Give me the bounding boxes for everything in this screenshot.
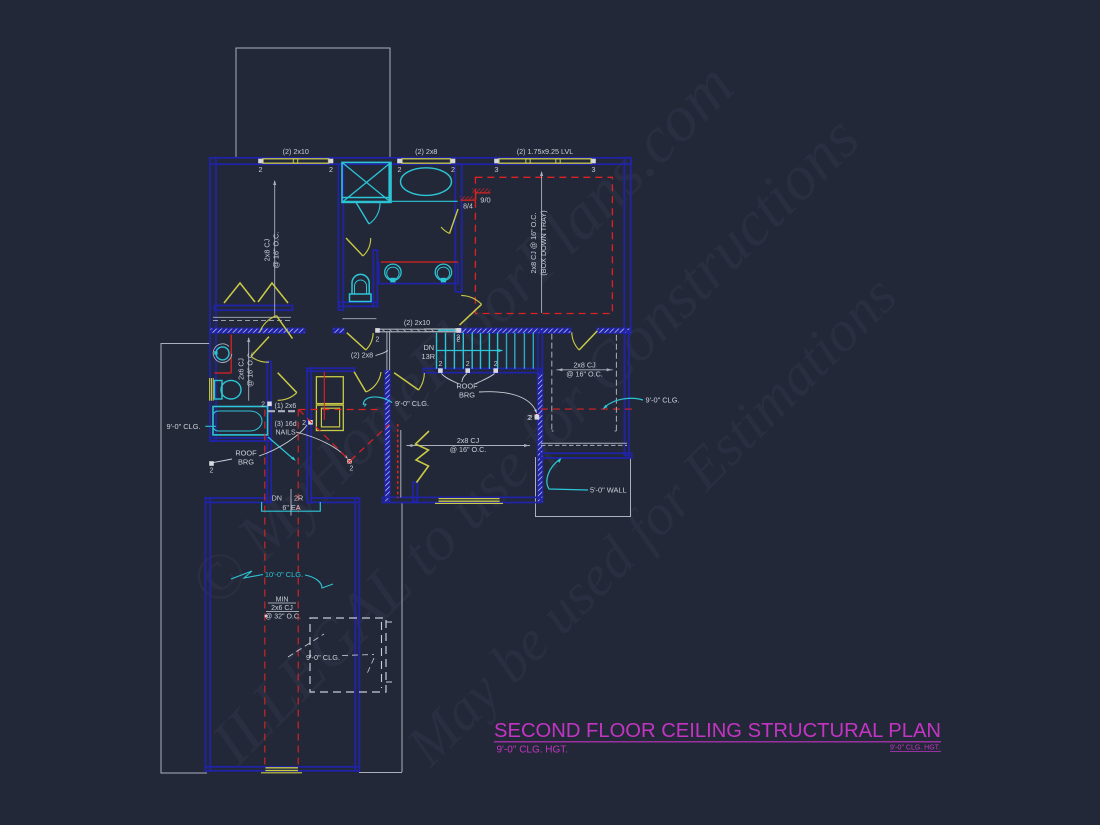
svg-text:9'-0" CLG. HGT.: 9'-0" CLG. HGT. bbox=[497, 745, 569, 756]
svg-text:8/4: 8/4 bbox=[463, 204, 473, 211]
svg-text:DN: DN bbox=[423, 343, 434, 352]
svg-text:SECOND FLOOR CEILING STRUCTURA: SECOND FLOOR CEILING STRUCTURAL PLAN bbox=[494, 720, 941, 742]
svg-text:2: 2 bbox=[398, 165, 402, 174]
svg-text:3: 3 bbox=[592, 165, 596, 174]
svg-text:@ 16" O.C.: @ 16" O.C. bbox=[566, 370, 603, 379]
svg-text:(3) 16d: (3) 16d bbox=[275, 421, 297, 428]
svg-text:9'-0" CLG.: 9'-0" CLG. bbox=[167, 422, 201, 431]
svg-text:2: 2 bbox=[438, 361, 442, 368]
svg-text:2: 2 bbox=[529, 415, 533, 422]
svg-text:2x6 CJ: 2x6 CJ bbox=[271, 605, 293, 612]
svg-text:(1) 2x6: (1) 2x6 bbox=[275, 403, 297, 410]
svg-text:2x8 CJ: 2x8 CJ bbox=[457, 436, 480, 445]
svg-text:@ 16" O.C.: @ 16" O.C. bbox=[248, 351, 255, 387]
svg-text:MIN: MIN bbox=[276, 597, 289, 604]
svg-text:(2) 2x10: (2) 2x10 bbox=[283, 147, 309, 156]
svg-text:2: 2 bbox=[210, 468, 214, 475]
svg-text:(2) 2x8: (2) 2x8 bbox=[415, 147, 437, 156]
svg-text:5'-0" WALL: 5'-0" WALL bbox=[590, 486, 627, 495]
svg-text:@ 16" O.C.: @ 16" O.C. bbox=[450, 445, 487, 454]
svg-text:ROOF: ROOF bbox=[456, 382, 478, 391]
svg-text:9'-0" CLG. HGT.: 9'-0" CLG. HGT. bbox=[890, 745, 940, 752]
svg-text:ROOF: ROOF bbox=[235, 449, 257, 458]
svg-text:2: 2 bbox=[261, 402, 265, 409]
svg-text:2: 2 bbox=[451, 165, 455, 174]
svg-text:6" EA: 6" EA bbox=[282, 503, 300, 512]
svg-text:2: 2 bbox=[259, 165, 263, 174]
svg-text:9'-0" CLG.: 9'-0" CLG. bbox=[395, 399, 429, 408]
svg-text:2R: 2R bbox=[294, 493, 303, 502]
svg-text:9'-0" CLG.: 9'-0" CLG. bbox=[306, 653, 340, 662]
svg-text:2: 2 bbox=[302, 420, 306, 427]
svg-text:(BOX DOWN TRAY): (BOX DOWN TRAY) bbox=[539, 210, 548, 275]
svg-text:2: 2 bbox=[494, 361, 498, 368]
svg-text:13R: 13R bbox=[422, 352, 436, 361]
svg-text:2: 2 bbox=[376, 337, 380, 344]
svg-text:2: 2 bbox=[466, 361, 470, 368]
svg-text:@ 32" O.C.: @ 32" O.C. bbox=[265, 614, 301, 621]
svg-text:2: 2 bbox=[350, 466, 354, 473]
svg-text:2x8 CJ @ 16" O.C.: 2x8 CJ @ 16" O.C. bbox=[529, 213, 538, 274]
svg-text:(2) 2x10: (2) 2x10 bbox=[404, 318, 430, 327]
svg-text:NAILS: NAILS bbox=[276, 430, 297, 437]
svg-text:(2) 1.75x9.25 LVL: (2) 1.75x9.25 LVL bbox=[517, 147, 574, 156]
svg-text:2x6 CJ: 2x6 CJ bbox=[239, 358, 246, 380]
svg-text:10'-0" CLG.: 10'-0" CLG. bbox=[265, 570, 303, 579]
svg-text:2: 2 bbox=[329, 165, 333, 174]
svg-text:@ 16" O.C.: @ 16" O.C. bbox=[272, 232, 281, 269]
svg-text:2x8 CJ: 2x8 CJ bbox=[263, 238, 272, 261]
svg-text:DN: DN bbox=[272, 493, 282, 502]
svg-text:3: 3 bbox=[495, 165, 499, 174]
svg-text:2x8 CJ: 2x8 CJ bbox=[573, 361, 596, 370]
svg-text:BRG: BRG bbox=[459, 391, 475, 400]
svg-text:BRG: BRG bbox=[238, 458, 254, 467]
svg-text:9/0: 9/0 bbox=[480, 196, 490, 205]
svg-text:(2) 2x8: (2) 2x8 bbox=[351, 351, 373, 360]
svg-text:9'-0" CLG.: 9'-0" CLG. bbox=[646, 396, 680, 405]
svg-text:2: 2 bbox=[456, 335, 460, 342]
